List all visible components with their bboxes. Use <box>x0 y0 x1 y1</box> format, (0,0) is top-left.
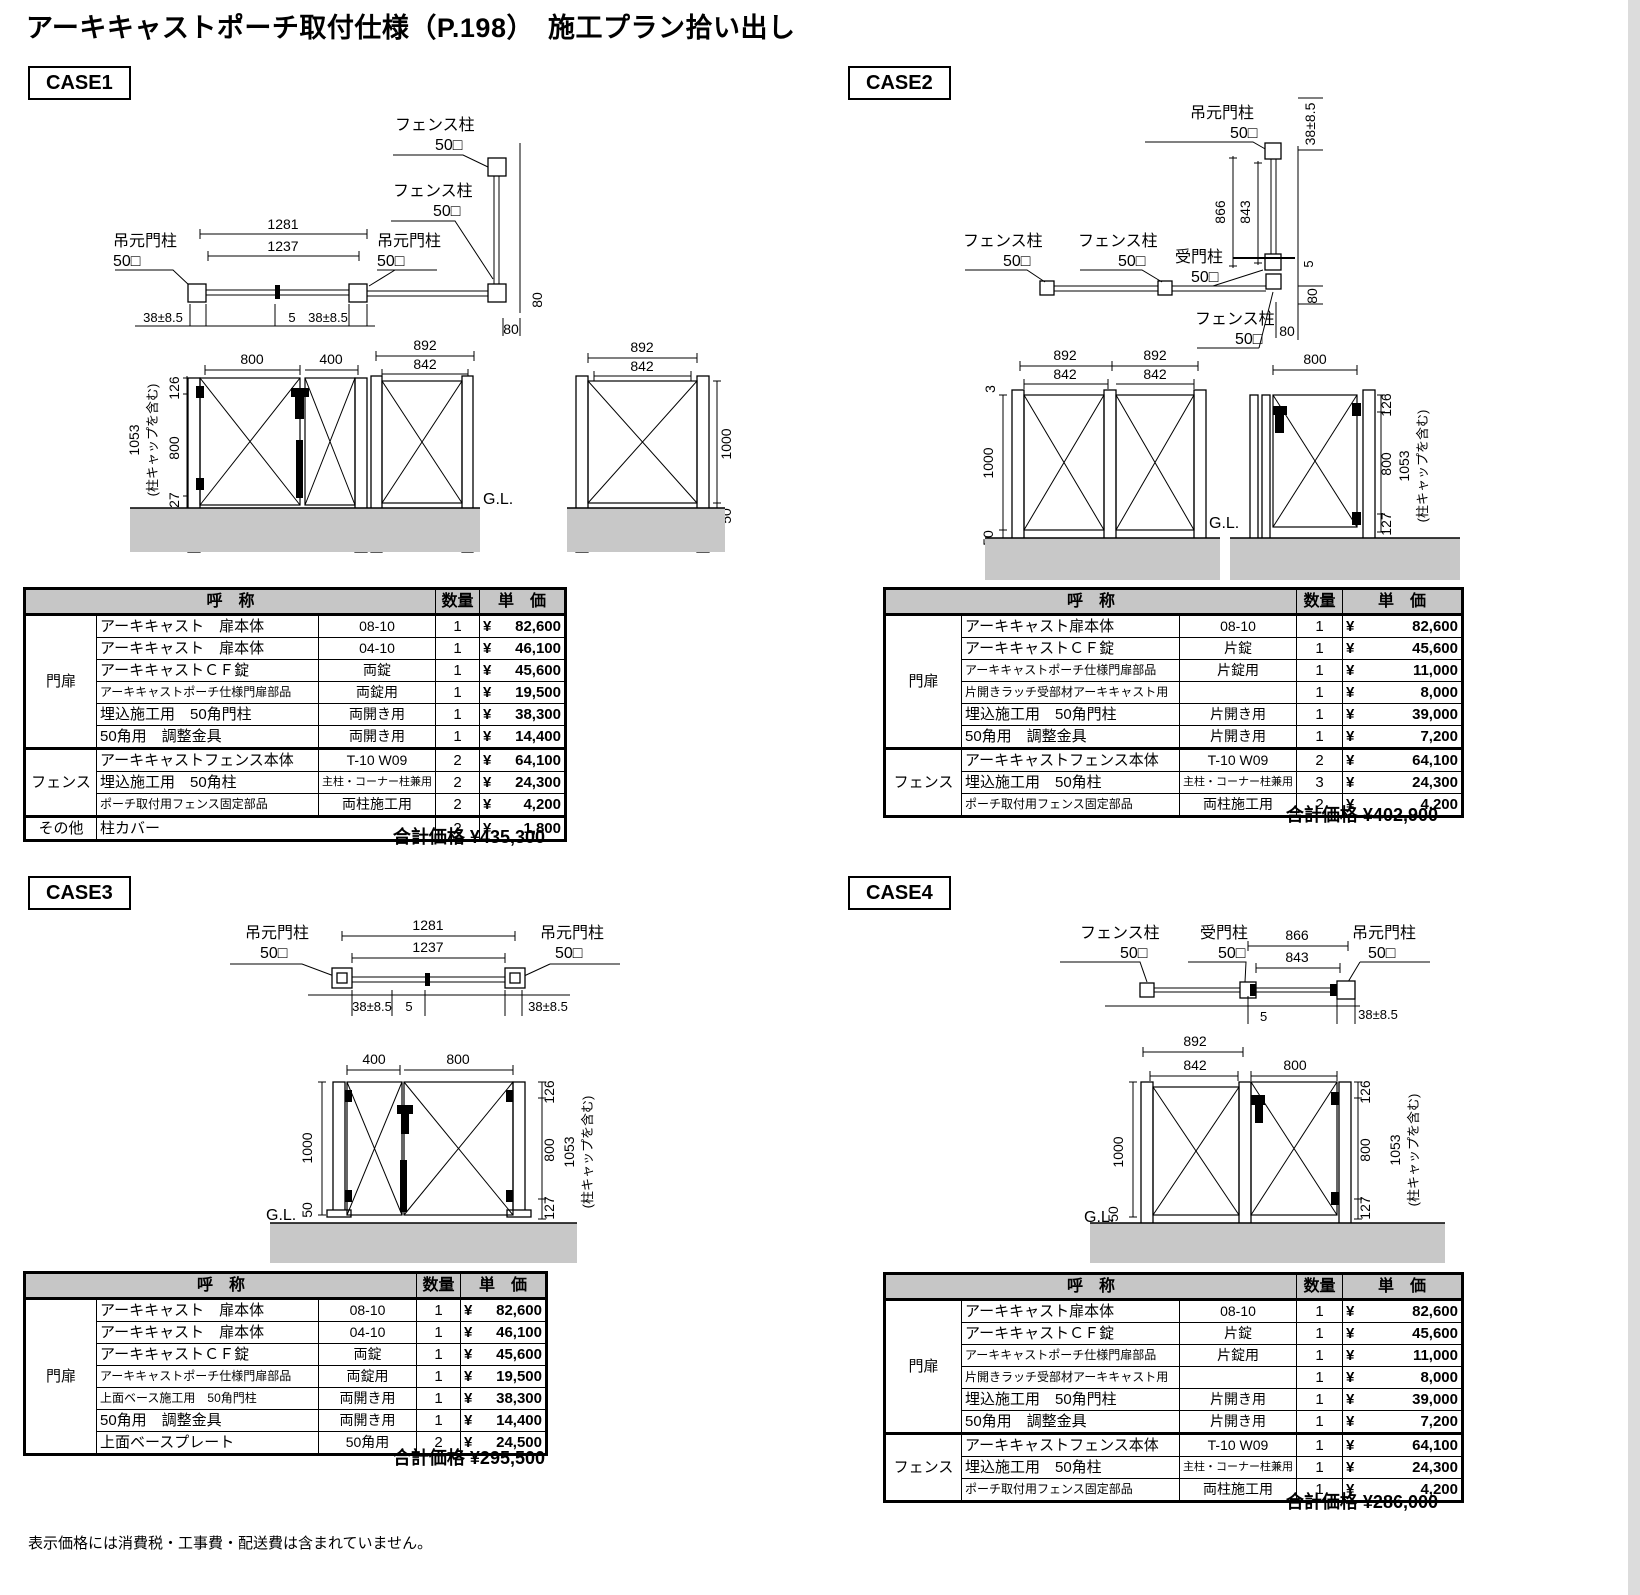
item-price: ¥24,300 <box>480 772 566 794</box>
dim-label: 127 <box>1357 1196 1373 1220</box>
item-name: アーキキャストフェンス本体 <box>97 749 319 772</box>
item-spec: 片開き用 <box>1180 1411 1297 1434</box>
item-name: 埋込施工用 50角柱 <box>962 1457 1180 1479</box>
case1-price-table: 呼 称 数量 単 価 門扉 アーキキャスト 扉本体 08-10 1 ¥82,60… <box>23 587 567 842</box>
gate-lock <box>1275 415 1284 433</box>
table-header-row: 呼 称 数量 単 価 <box>885 589 1463 615</box>
hinge <box>1330 984 1337 996</box>
item-name: アーキキャスト 扉本体 <box>97 638 319 660</box>
item-price: ¥39,000 <box>1343 704 1463 726</box>
item-name: アーキキャストＣＦ錠 <box>962 1323 1180 1345</box>
item-spec <box>1180 682 1297 704</box>
item-price: ¥8,000 <box>1343 1367 1463 1389</box>
case2-plan-view: 吊元門柱 50□ フェンス柱 50□ フェンス柱 50□ 受門柱 50□ フェン… <box>963 98 1323 348</box>
item-price: ¥24,300 <box>1343 1457 1463 1479</box>
item-spec: 両柱施工用 <box>319 794 436 817</box>
case3-label: CASE3 <box>28 876 131 910</box>
item-price: ¥38,300 <box>480 704 566 726</box>
table-row: フェンス アーキキャストフェンス本体 T-10 W09 1 ¥64,100 <box>885 1434 1463 1457</box>
post-size-label: 50□ <box>1230 125 1258 142</box>
item-qty: 1 <box>1297 1323 1343 1345</box>
post-size-label: 50□ <box>1118 253 1146 270</box>
case3-price-table: 呼 称 数量 単 価 門扉 アーキキャスト 扉本体 08-10 1 ¥82,60… <box>23 1271 548 1456</box>
item-name: 片開きラッチ受部材アーキキャスト用 <box>962 682 1180 704</box>
item-name: アーキキャスト 扉本体 <box>97 1299 319 1322</box>
drop-bar <box>296 440 303 498</box>
gate-lock <box>1251 1095 1265 1105</box>
fence-post <box>1012 390 1024 562</box>
hinge <box>506 1090 513 1102</box>
item-spec: 両錠用 <box>319 1366 417 1388</box>
table-row: 埋込施工用 50角門柱 片開き用 1 ¥39,000 <box>885 704 1463 726</box>
fence-post <box>1104 390 1116 562</box>
item-price: ¥4,200 <box>480 794 566 817</box>
dim-label: 1053 <box>561 1136 577 1167</box>
category-cell: フェンス <box>25 749 97 817</box>
item-qty: 1 <box>417 1388 461 1410</box>
dim-label: 843 <box>1285 949 1309 965</box>
gate-lock <box>1255 1105 1263 1123</box>
dim-label: 5 <box>288 310 295 325</box>
dim-label: 800 <box>1378 452 1394 476</box>
gate-lock <box>1273 406 1287 415</box>
item-name: 50角用 調整金具 <box>97 1410 319 1432</box>
item-spec: 主柱・コーナー柱兼用 <box>319 772 436 794</box>
post <box>188 284 206 302</box>
hinge <box>1331 1192 1339 1205</box>
drop-bar <box>400 1160 407 1212</box>
hinge <box>1352 403 1361 416</box>
item-spec: 08-10 <box>319 615 436 638</box>
dim-label: 892 <box>413 337 437 353</box>
item-name: 埋込施工用 50角門柱 <box>97 704 319 726</box>
dim-label: 400 <box>319 351 343 367</box>
item-spec: 両錠 <box>319 1344 417 1366</box>
item-price: ¥64,100 <box>1343 1434 1463 1457</box>
hinge-post-label: 吊元門柱 <box>1190 104 1254 122</box>
item-spec: 両開き用 <box>319 726 436 749</box>
item-name: アーキキャストＣＦ錠 <box>97 1344 319 1366</box>
item-name: 埋込施工用 50角門柱 <box>962 1389 1180 1411</box>
item-price: ¥11,000 <box>1343 1345 1463 1367</box>
case2-drawing: 吊元門柱 50□ フェンス柱 50□ フェンス柱 50□ 受門柱 50□ フェン… <box>915 88 1615 588</box>
ground-line-label: G.L. <box>483 491 513 508</box>
table-row: アーキキャストポーチ仕様門扉部品 片錠用 1 ¥11,000 <box>885 1345 1463 1367</box>
hinge <box>345 1190 352 1202</box>
dim-label: 3 <box>982 385 998 393</box>
item-price: ¥7,200 <box>1343 726 1463 749</box>
ground <box>270 1223 577 1263</box>
item-qty: 1 <box>1297 1434 1343 1457</box>
table-row: 埋込施工用 50角柱 主柱・コーナー柱兼用 2 ¥24,300 <box>25 772 566 794</box>
gate-lock <box>401 1114 409 1134</box>
table-header-row: 呼 称 数量 単 価 <box>25 1273 547 1299</box>
dim-label: 38±8.5 <box>352 999 392 1014</box>
item-qty: 1 <box>1297 1389 1343 1411</box>
table-header-row: 呼 称 数量 単 価 <box>25 589 566 615</box>
table-row: アーキキャストＣＦ錠 両錠 1 ¥45,600 <box>25 1344 547 1366</box>
item-spec: 片開き用 <box>1180 704 1297 726</box>
fence-post-label: フェンス柱 <box>1195 310 1275 328</box>
item-name: アーキキャストＣＦ錠 <box>97 660 319 682</box>
case1-drawing: 1281 1237 吊元門柱 50□ 吊元門柱 50□ フェンス柱 50□ フェ… <box>95 88 755 568</box>
item-name: アーキキャスト扉本体 <box>962 1300 1180 1323</box>
item-qty: 1 <box>1297 638 1343 660</box>
dim-label: 1237 <box>412 939 443 955</box>
item-spec: 両錠 <box>319 660 436 682</box>
item-qty: 1 <box>1297 1345 1343 1367</box>
category-cell: 門扉 <box>885 1300 962 1434</box>
dim-label: 842 <box>413 356 437 372</box>
dim-label: 50 <box>1105 1206 1121 1222</box>
case2-elevation-view: 892 892 842 842 3 1000 50 G.L. 800 <box>980 347 1460 580</box>
receiver-post-label: 受門柱 <box>1200 924 1248 942</box>
table-row: アーキキャスト 扉本体 04-10 1 ¥46,100 <box>25 638 566 660</box>
gate-post <box>513 1082 525 1215</box>
case3-plan-view: 吊元門柱 50□ 吊元門柱 50□ 1281 1237 38±8.5 5 38±… <box>230 917 620 1016</box>
base-plate <box>507 1210 531 1217</box>
page-title: アーキキャストポーチ取付仕様（P.198） 施工プラン拾い出し <box>26 6 795 45</box>
item-spec: 片開き用 <box>1180 726 1297 749</box>
ground <box>985 538 1220 580</box>
case4-drawing: フェンス柱 50□ 受門柱 50□ 吊元門柱 50□ 866 843 5 38±… <box>1000 880 1640 1275</box>
item-price: ¥46,100 <box>480 638 566 660</box>
item-price: ¥38,300 <box>461 1388 547 1410</box>
case3-drawing: 吊元門柱 50□ 吊元門柱 50□ 1281 1237 38±8.5 5 38±… <box>200 880 650 1275</box>
category-cell: 門扉 <box>885 615 962 749</box>
item-price: ¥39,000 <box>1343 1389 1463 1411</box>
dim-label: 80 <box>1279 323 1295 339</box>
post-size-label: 50□ <box>433 203 461 220</box>
hinge <box>1331 1092 1339 1105</box>
post-size-label: 50□ <box>1235 331 1263 348</box>
scan-edge <box>1628 0 1640 1595</box>
item-price: ¥82,600 <box>461 1299 547 1322</box>
post <box>1266 274 1281 289</box>
case3-total: 合計価格 ¥295,500 <box>23 1444 545 1470</box>
receiver-post-label: 受門柱 <box>1175 248 1223 266</box>
dim-label: 5 <box>405 999 412 1014</box>
post <box>1337 981 1355 999</box>
item-price: ¥45,600 <box>1343 638 1463 660</box>
item-spec: 片錠用 <box>1180 660 1297 682</box>
post-size-label: 50□ <box>1003 253 1031 270</box>
item-qty: 2 <box>436 772 480 794</box>
item-name: 埋込施工用 50角柱 <box>962 772 1180 794</box>
table-row: フェンス アーキキャストフェンス本体 T-10 W09 2 ¥64,100 <box>885 749 1463 772</box>
post-size-label: 50□ <box>1120 945 1148 962</box>
item-qty: 1 <box>1297 660 1343 682</box>
case3-elevation-view: 400 800 G.L. 50 1000 126 800 127 <box>266 1051 595 1263</box>
dim-label: 126 <box>541 1080 557 1104</box>
dim-label: 800 <box>166 436 182 460</box>
table-row: 門扉 アーキキャスト 扉本体 08-10 1 ¥82,600 <box>25 1299 547 1322</box>
name-header: 呼 称 <box>25 589 436 615</box>
item-qty: 1 <box>436 638 480 660</box>
table-row: 50角用 調整金具 両開き用 1 ¥14,400 <box>25 726 566 749</box>
dim-label: 1281 <box>267 216 298 232</box>
gate-post <box>1363 390 1375 562</box>
item-name: 50角用 調整金具 <box>962 726 1180 749</box>
item-price: ¥8,000 <box>1343 682 1463 704</box>
fence-post-label: フェンス柱 <box>1080 924 1160 942</box>
catalog-page: アーキキャストポーチ取付仕様（P.198） 施工プラン拾い出し CASE1 CA… <box>0 0 1640 1595</box>
item-spec: 両開き用 <box>319 704 436 726</box>
dim-label: 38±8.5 <box>1302 102 1318 145</box>
item-spec <box>1180 1367 1297 1389</box>
dim-label: 843 <box>1237 200 1253 224</box>
case2-price-table: 呼 称 数量 単 価 門扉 アーキキャスト扉本体 08-10 1 ¥82,600… <box>883 587 1464 818</box>
qty-header: 数量 <box>417 1273 461 1299</box>
table-header-row: 呼 称 数量 単 価 <box>885 1274 1463 1300</box>
item-price: ¥82,600 <box>1343 1300 1463 1323</box>
category-cell: 門扉 <box>25 615 97 749</box>
table-row: 50角用 調整金具 両開き用 1 ¥14,400 <box>25 1410 547 1432</box>
item-price: ¥45,600 <box>480 660 566 682</box>
price-header: 単 価 <box>480 589 566 615</box>
dim-label: 126 <box>166 376 182 400</box>
price-header: 単 価 <box>1343 1274 1463 1300</box>
case4-price-table: 呼 称 数量 単 価 門扉 アーキキャスト扉本体 08-10 1 ¥82,600… <box>883 1272 1464 1503</box>
item-price: ¥7,200 <box>1343 1411 1463 1434</box>
item-qty: 1 <box>436 682 480 704</box>
dim-label: 5 <box>1260 1009 1267 1024</box>
item-name: アーキキャストポーチ仕様門扉部品 <box>962 660 1180 682</box>
item-spec: 04-10 <box>319 638 436 660</box>
hinge <box>345 1090 352 1102</box>
item-name: 上面ベース施工用 50角門柱 <box>97 1388 319 1410</box>
dim-label: 842 <box>1143 366 1167 382</box>
dim-label: 38±8.5 <box>143 310 183 325</box>
dim-label: 1237 <box>267 238 298 254</box>
dim-label: 38±8.5 <box>308 310 348 325</box>
item-qty: 3 <box>1297 772 1343 794</box>
dim-label: 892 <box>630 339 654 355</box>
case2-total: 合計価格 ¥402,900 <box>883 801 1438 827</box>
item-name: アーキキャスト扉本体 <box>962 615 1180 638</box>
table-row: 片開きラッチ受部材アーキキャスト用 1 ¥8,000 <box>885 682 1463 704</box>
table-row: 上面ベース施工用 50角門柱 両開き用 1 ¥38,300 <box>25 1388 547 1410</box>
price-disclaimer: 表示価格には消費税・工事費・配送費は含まれていません。 <box>28 1532 432 1553</box>
dim-label: 842 <box>630 358 654 374</box>
dim-label: 1053 <box>1396 450 1412 481</box>
item-spec: 片錠 <box>1180 1323 1297 1345</box>
hinge-post-label: 吊元門柱 <box>113 232 177 250</box>
item-qty: 2 <box>436 749 480 772</box>
post-size-label: 50□ <box>260 945 288 962</box>
ground <box>130 508 480 552</box>
dim-label: 800 <box>1357 1138 1373 1162</box>
latch <box>1250 984 1256 996</box>
table-row: アーキキャストポーチ仕様門扉部品 両錠用 1 ¥19,500 <box>25 1366 547 1388</box>
item-price: ¥11,000 <box>1343 660 1463 682</box>
item-name: アーキキャストＣＦ錠 <box>962 638 1180 660</box>
item-qty: 1 <box>1297 1367 1343 1389</box>
item-price: ¥19,500 <box>480 682 566 704</box>
table-row: 50角用 調整金具 片開き用 1 ¥7,200 <box>885 1411 1463 1434</box>
table-row: アーキキャストＣＦ錠 両錠 1 ¥45,600 <box>25 660 566 682</box>
hinge-post-label: 吊元門柱 <box>540 924 604 942</box>
post <box>1140 983 1154 997</box>
qty-header: 数量 <box>1297 1274 1343 1300</box>
item-name: アーキキャストポーチ仕様門扉部品 <box>962 1345 1180 1367</box>
dim-label: 127 <box>541 1196 557 1220</box>
table-row: 埋込施工用 50角門柱 両開き用 1 ¥38,300 <box>25 704 566 726</box>
item-qty: 1 <box>1297 1300 1343 1323</box>
table-row: アーキキャストポーチ仕様門扉部品 両錠用 1 ¥19,500 <box>25 682 566 704</box>
table-row: 50角用 調整金具 片開き用 1 ¥7,200 <box>885 726 1463 749</box>
table-row: 門扉 アーキキャスト扉本体 08-10 1 ¥82,600 <box>885 615 1463 638</box>
case4-elevation-view: 892 842 800 G.L. 50 1000 126 800 127 105… <box>1084 1033 1445 1263</box>
item-spec: 両開き用 <box>319 1388 417 1410</box>
item-price: ¥24,300 <box>1343 772 1463 794</box>
post-size-label: 50□ <box>1368 945 1396 962</box>
item-price: ¥19,500 <box>461 1366 547 1388</box>
case4-plan-view: フェンス柱 50□ 受門柱 50□ 吊元門柱 50□ 866 843 5 38±… <box>1060 924 1430 1024</box>
item-qty: 2 <box>436 794 480 817</box>
qty-header: 数量 <box>436 589 480 615</box>
table-row: 埋込施工用 50角門柱 片開き用 1 ¥39,000 <box>885 1389 1463 1411</box>
dim-label: 800 <box>446 1051 470 1067</box>
fence-post-label: フェンス柱 <box>393 182 473 200</box>
fence-post <box>1250 395 1258 560</box>
fence-post <box>1262 395 1270 560</box>
item-price: ¥82,600 <box>480 615 566 638</box>
item-qty: 1 <box>1297 682 1343 704</box>
item-name: アーキキャストフェンス本体 <box>962 1434 1180 1457</box>
post-size-label: 50□ <box>1218 945 1246 962</box>
post <box>1158 281 1172 295</box>
item-spec: 主柱・コーナー柱兼用 <box>1180 772 1297 794</box>
item-price: ¥14,400 <box>480 726 566 749</box>
post <box>1040 281 1054 295</box>
hinge <box>506 1190 513 1202</box>
case1-plan-view: 1281 1237 吊元門柱 50□ 吊元門柱 50□ フェンス柱 50□ フェ… <box>113 116 545 337</box>
item-spec: T-10 W09 <box>1180 1434 1297 1457</box>
item-spec: 片錠 <box>1180 638 1297 660</box>
item-name: 片開きラッチ受部材アーキキャスト用 <box>962 1367 1180 1389</box>
cap-note: (柱キャップを含む) <box>1406 1094 1421 1207</box>
item-qty: 1 <box>417 1322 461 1344</box>
item-name: 50角用 調整金具 <box>962 1411 1180 1434</box>
dim-label: 400 <box>362 1051 386 1067</box>
item-name: 埋込施工用 50角柱 <box>97 772 319 794</box>
post <box>349 284 367 302</box>
item-price: ¥46,100 <box>461 1322 547 1344</box>
table-row: フェンス アーキキャストフェンス本体 T-10 W09 2 ¥64,100 <box>25 749 566 772</box>
dim-label: 1000 <box>299 1132 315 1163</box>
dim-label: 80 <box>529 292 545 308</box>
table-row: 埋込施工用 50角柱 主柱・コーナー柱兼用 1 ¥24,300 <box>885 1457 1463 1479</box>
item-spec: 04-10 <box>319 1322 417 1344</box>
hinge-post-label: 吊元門柱 <box>1352 924 1416 942</box>
post-size-label: 50□ <box>377 253 405 270</box>
dim-label: 842 <box>1183 1057 1207 1073</box>
item-spec: 主柱・コーナー柱兼用 <box>1180 1457 1297 1479</box>
post <box>1265 143 1281 159</box>
item-price: ¥64,100 <box>1343 749 1463 772</box>
table-row: アーキキャスト 扉本体 04-10 1 ¥46,100 <box>25 1322 547 1344</box>
fence-post-label: フェンス柱 <box>963 232 1043 250</box>
dim-label: 800 <box>240 351 264 367</box>
case1-elevation-view: 800 400 892 842 1053 (柱キャップを含む) 126 800 … <box>126 337 734 552</box>
item-name: アーキキャストフェンス本体 <box>962 749 1180 772</box>
dim-label: 1000 <box>718 428 734 459</box>
category-cell: 門扉 <box>25 1299 97 1455</box>
gate-post <box>333 1082 345 1215</box>
post-core <box>510 973 520 983</box>
ground-line-label: G.L. <box>1209 515 1239 532</box>
dim-label: 866 <box>1285 927 1309 943</box>
item-qty: 1 <box>1297 615 1343 638</box>
cap-note: (柱キャップを含む) <box>145 384 160 497</box>
item-price: ¥82,600 <box>1343 615 1463 638</box>
fence-post-label: フェンス柱 <box>1078 232 1158 250</box>
dim-label: 80 <box>503 321 519 337</box>
hinge <box>196 386 204 398</box>
qty-header: 数量 <box>1297 589 1343 615</box>
item-spec: 両錠用 <box>319 682 436 704</box>
dim-label: 38±8.5 <box>528 999 568 1014</box>
dim-label: 126 <box>1378 393 1394 417</box>
item-qty: 1 <box>417 1344 461 1366</box>
post-size-label: 50□ <box>435 137 463 154</box>
post <box>1265 254 1281 270</box>
dim-label: 892 <box>1053 347 1077 363</box>
dim-label: 1281 <box>412 917 443 933</box>
case4-total: 合計価格 ¥286,000 <box>883 1488 1438 1514</box>
item-qty: 1 <box>1297 726 1343 749</box>
item-spec: T-10 W09 <box>1180 749 1297 772</box>
cap-note: (柱キャップを含む) <box>580 1096 595 1209</box>
dim-label: 80 <box>1304 288 1320 304</box>
item-spec: 08-10 <box>319 1299 417 1322</box>
item-spec: 片錠用 <box>1180 1345 1297 1367</box>
case4-label: CASE4 <box>848 876 951 910</box>
dim-label: 842 <box>1053 366 1077 382</box>
dim-label: 1000 <box>1110 1136 1126 1167</box>
table-row: 埋込施工用 50角柱 主柱・コーナー柱兼用 3 ¥24,300 <box>885 772 1463 794</box>
dim-label: 1053 <box>126 424 142 455</box>
item-price: ¥45,600 <box>461 1344 547 1366</box>
table-row: 門扉 アーキキャスト扉本体 08-10 1 ¥82,600 <box>885 1300 1463 1323</box>
item-name: ポーチ取付用フェンス固定部品 <box>97 794 319 817</box>
item-name: 埋込施工用 50角門柱 <box>962 704 1180 726</box>
item-qty: 1 <box>1297 704 1343 726</box>
item-qty: 1 <box>436 660 480 682</box>
item-qty: 1 <box>417 1366 461 1388</box>
post <box>488 158 506 176</box>
post-core <box>337 973 347 983</box>
ground <box>567 508 725 552</box>
item-qty: 1 <box>436 615 480 638</box>
hinge <box>196 478 204 490</box>
table-row: アーキキャストポーチ仕様門扉部品 片錠用 1 ¥11,000 <box>885 660 1463 682</box>
gate-lock <box>291 388 309 397</box>
gate-stop <box>275 285 280 299</box>
item-name: アーキキャスト 扉本体 <box>97 1322 319 1344</box>
dim-label: 800 <box>541 1138 557 1162</box>
item-price: ¥14,400 <box>461 1410 547 1432</box>
item-spec: T-10 W09 <box>319 749 436 772</box>
table-row: 片開きラッチ受部材アーキキャスト用 1 ¥8,000 <box>885 1367 1463 1389</box>
dim-label: 50 <box>299 1202 315 1218</box>
ground <box>1230 538 1460 580</box>
table-row: アーキキャストＣＦ錠 片錠 1 ¥45,600 <box>885 638 1463 660</box>
post <box>488 284 506 302</box>
case1-total: 合計価格 ¥435,300 <box>23 823 545 849</box>
price-header: 単 価 <box>461 1273 547 1299</box>
